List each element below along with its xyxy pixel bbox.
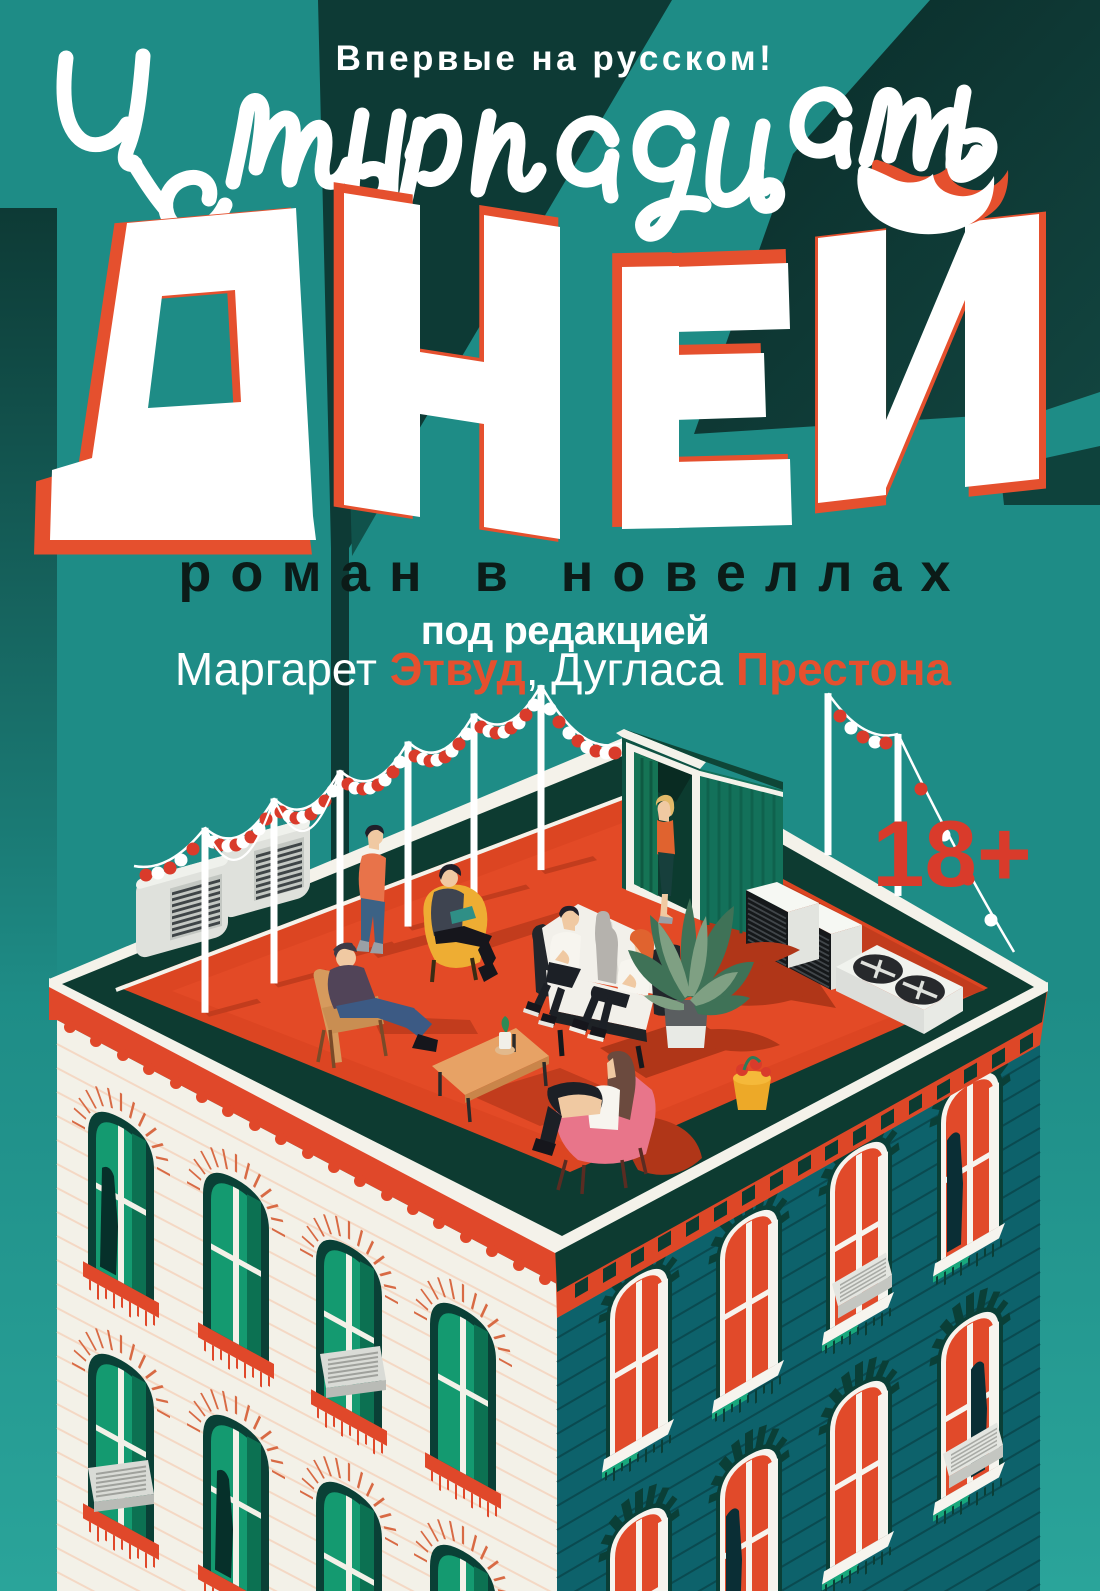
svg-text:18+: 18+ bbox=[872, 801, 1031, 906]
svg-text:роман в новеллах: роман в новеллах bbox=[178, 543, 969, 603]
svg-text:Маргарет Этвуд, Дугласа Престо: Маргарет Этвуд, Дугласа Престона bbox=[175, 643, 952, 695]
svg-text:Впервые на русском!: Впервые на русском! bbox=[336, 39, 775, 78]
